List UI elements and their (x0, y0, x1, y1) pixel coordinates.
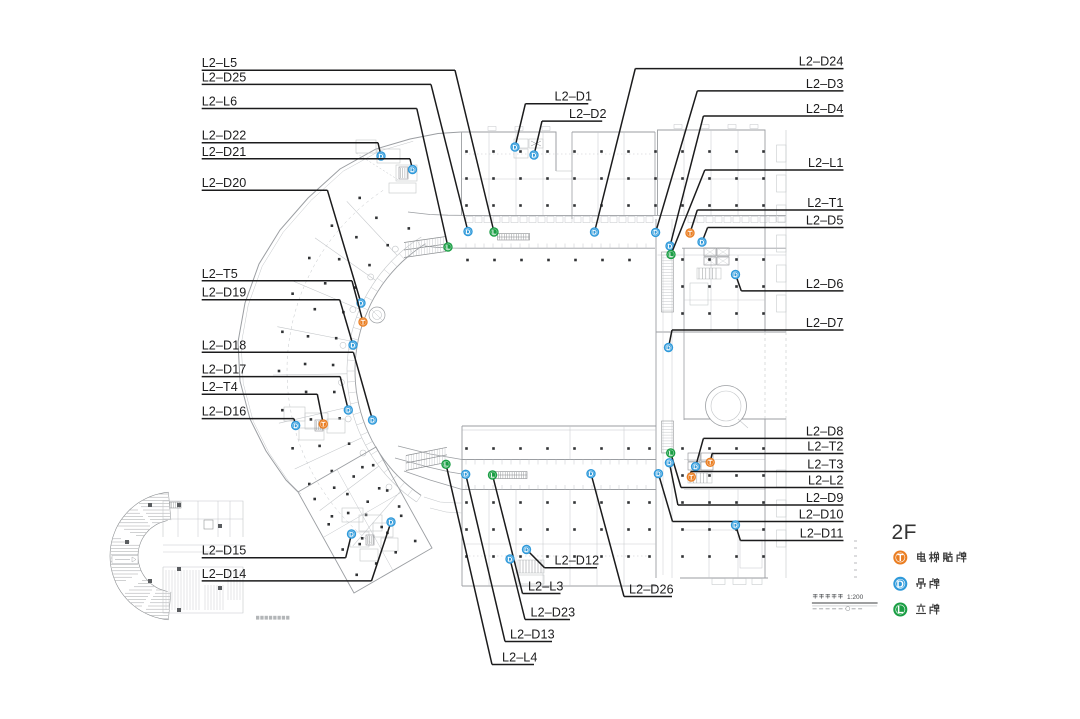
svg-text:L2–L1: L2–L1 (808, 156, 844, 170)
svg-text:L2–D8: L2–D8 (806, 424, 844, 438)
svg-text:L2–D18: L2–D18 (202, 338, 247, 352)
svg-text:D: D (524, 547, 529, 554)
svg-text:L: L (492, 229, 496, 236)
svg-text:D: D (389, 519, 394, 526)
svg-text:D: D (508, 556, 513, 563)
svg-text:L2–T1: L2–T1 (807, 196, 843, 210)
svg-text:D: D (693, 464, 698, 471)
svg-text:D: D (463, 472, 468, 479)
svg-text:D: D (513, 144, 518, 151)
svg-text:L2–D26: L2–D26 (629, 583, 674, 597)
svg-text:L2–D6: L2–D6 (806, 277, 844, 291)
svg-text:L2–D24: L2–D24 (799, 55, 844, 69)
svg-text:L2–T5: L2–T5 (202, 267, 238, 281)
svg-text:L2–T3: L2–T3 (807, 458, 843, 472)
svg-text:D: D (346, 407, 351, 414)
svg-text:T: T (689, 474, 693, 481)
svg-text:D: D (733, 272, 738, 279)
svg-text:L2–D20: L2–D20 (202, 176, 247, 190)
svg-text:D: D (656, 471, 661, 478)
svg-text:L2–D22: L2–D22 (202, 129, 247, 143)
svg-text:L2–D4: L2–D4 (806, 102, 844, 116)
svg-text:L2–D7: L2–D7 (806, 316, 844, 330)
svg-text:D: D (653, 230, 658, 237)
svg-text:2F: 2F (892, 521, 918, 544)
svg-text:L2–L5: L2–L5 (202, 56, 238, 70)
svg-text:D: D (700, 239, 705, 246)
svg-text:L2–D2: L2–D2 (569, 107, 607, 121)
svg-text:L2–D14: L2–D14 (202, 567, 247, 581)
svg-text:D: D (410, 167, 415, 174)
svg-text:L2–T2: L2–T2 (807, 440, 843, 454)
svg-text:L2–L6: L2–L6 (202, 95, 238, 109)
svg-text:D: D (589, 471, 594, 478)
svg-text:D: D (733, 522, 738, 529)
svg-text:L: L (669, 450, 673, 457)
svg-text:L2–D25: L2–D25 (202, 70, 247, 84)
svg-text:L2–D9: L2–D9 (806, 491, 844, 505)
svg-text:L2–D3: L2–D3 (806, 77, 844, 91)
svg-text:L2–L2: L2–L2 (808, 474, 844, 488)
svg-text:L2–D16: L2–D16 (202, 405, 247, 419)
svg-text:D: D (592, 229, 597, 236)
svg-text:L: L (446, 244, 450, 251)
svg-text:T: T (688, 230, 692, 237)
svg-text:L2–L3: L2–L3 (528, 580, 564, 594)
svg-text:L: L (897, 605, 903, 616)
svg-text:L2–D19: L2–D19 (202, 286, 247, 300)
svg-text:L: L (669, 252, 673, 259)
svg-text:D: D (897, 579, 904, 590)
svg-text:D: D (668, 243, 673, 250)
svg-text:L2–D17: L2–D17 (202, 363, 247, 377)
svg-text:L2–L4: L2–L4 (502, 651, 538, 665)
svg-text:D: D (349, 531, 354, 538)
svg-text:D: D (666, 345, 671, 352)
svg-text:D: D (667, 460, 672, 467)
svg-text:D: D (293, 423, 298, 430)
svg-text:D: D (466, 229, 471, 236)
svg-text:L2–D13: L2–D13 (510, 628, 555, 642)
svg-text:L2–T4: L2–T4 (202, 380, 238, 394)
svg-text:D: D (532, 152, 537, 159)
svg-text:D: D (370, 417, 375, 424)
svg-text:L2–D10: L2–D10 (799, 508, 844, 522)
svg-text:T: T (897, 553, 903, 564)
svg-text:L2–D15: L2–D15 (202, 544, 247, 558)
svg-text:T: T (708, 460, 712, 467)
svg-text:T: T (361, 319, 365, 326)
svg-text:L2–D12: L2–D12 (555, 554, 600, 568)
svg-text:D: D (351, 342, 356, 349)
svg-text:L2–D21: L2–D21 (202, 145, 247, 159)
svg-text:L2–D11: L2–D11 (800, 527, 844, 541)
svg-text:L2–D5: L2–D5 (806, 214, 844, 228)
svg-text:L2–D1: L2–D1 (555, 90, 593, 104)
svg-text:1:200: 1:200 (847, 594, 864, 601)
svg-text:L: L (444, 462, 448, 469)
svg-text:L2–D23: L2–D23 (531, 606, 576, 620)
svg-text:T: T (321, 421, 325, 428)
svg-text:L: L (491, 472, 495, 479)
